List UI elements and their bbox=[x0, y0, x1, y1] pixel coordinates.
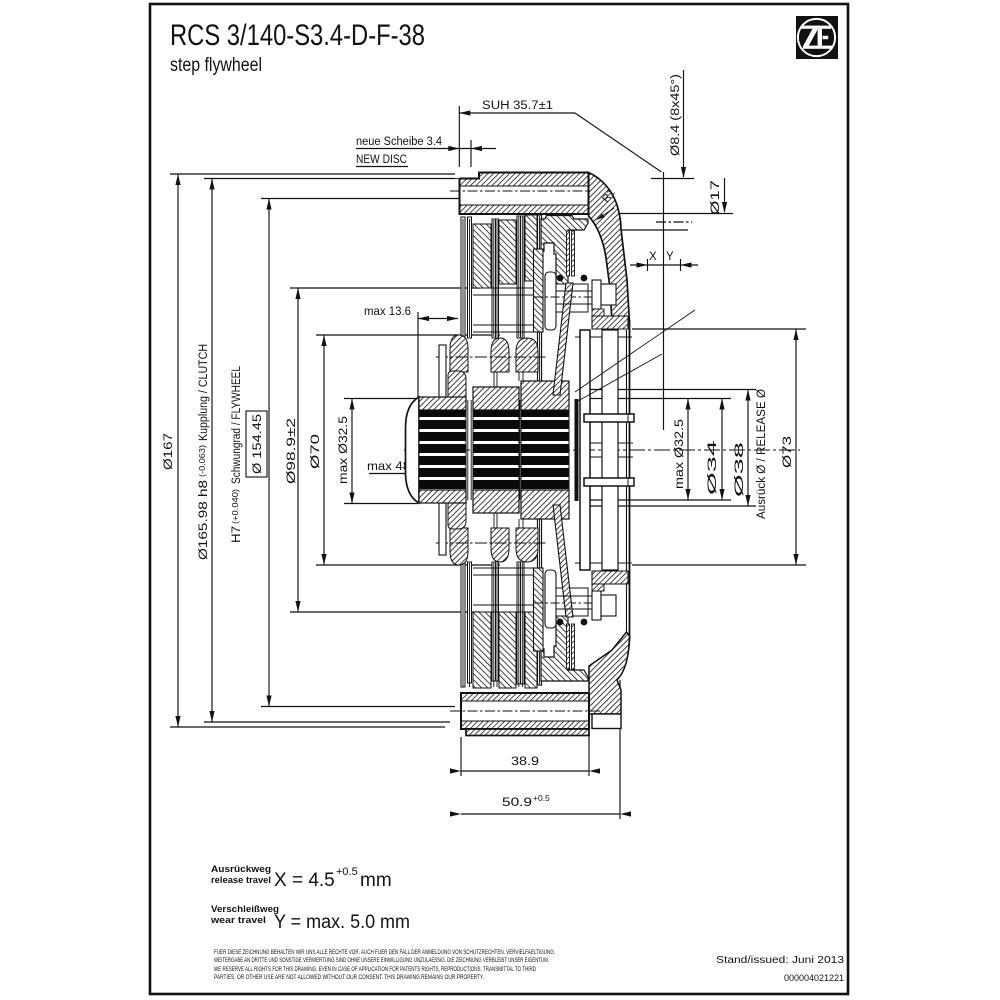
svg-text:Ø 154.45: Ø 154.45 bbox=[252, 414, 264, 474]
svg-text:Stand/issued: Juni 2013: Stand/issued: Juni 2013 bbox=[716, 954, 844, 966]
svg-text:Ø8.4 (8x45°): Ø8.4 (8x45°) bbox=[670, 74, 682, 156]
svg-text:max Ø32.5: max Ø32.5 bbox=[674, 419, 686, 489]
svg-text:release travel: release travel bbox=[211, 875, 271, 886]
svg-text:Verschleißweg: Verschleißweg bbox=[211, 904, 279, 915]
svg-text:Ø70: Ø70 bbox=[310, 434, 322, 469]
svg-text:WEITERGABE AN DRITTE UND SONST: WEITERGABE AN DRITTE UND SONSTIGE VERWER… bbox=[214, 957, 549, 964]
svg-text:Ø165.98 h8: Ø165.98 h8 bbox=[198, 480, 210, 560]
svg-text:WE RESERVE ALL RIGHTS FOR THIS: WE RESERVE ALL RIGHTS FOR THIS DRAWING. … bbox=[214, 966, 536, 973]
svg-text:Ausrück Ø / RELEASE Ø: Ausrück Ø / RELEASE Ø bbox=[756, 389, 768, 519]
svg-text:FUER DIESE ZEICHNUNG BEHALTEN: FUER DIESE ZEICHNUNG BEHALTEN WIR UNS AL… bbox=[214, 949, 555, 956]
svg-text:PARTIES, OR OTHER USE ARE NOT: PARTIES, OR OTHER USE ARE NOT ALLOWED WI… bbox=[214, 974, 484, 981]
svg-text:50.9: 50.9 bbox=[502, 797, 532, 809]
svg-text:SUH 35.7±1: SUH 35.7±1 bbox=[482, 100, 553, 112]
svg-text:(+0.040): (+0.040) bbox=[231, 489, 240, 524]
svg-text:Ø34: Ø34 bbox=[707, 439, 719, 495]
svg-text:mm: mm bbox=[360, 870, 392, 891]
svg-text:000004021221: 000004021221 bbox=[784, 973, 844, 983]
svg-text:(-0.063): (-0.063) bbox=[198, 445, 207, 477]
svg-text:max Ø32.5: max Ø32.5 bbox=[338, 416, 350, 484]
svg-text:H7: H7 bbox=[231, 526, 243, 543]
svg-text:Ø98.9±2: Ø98.9±2 bbox=[286, 418, 298, 484]
svg-text:Ø17: Ø17 bbox=[710, 180, 722, 215]
svg-text:Y = max. 5.0 mm: Y = max. 5.0 mm bbox=[274, 912, 410, 933]
svg-text:Ausrückweg: Ausrückweg bbox=[211, 864, 271, 875]
svg-text:X = 4.5: X = 4.5 bbox=[274, 870, 335, 891]
svg-text:Ø167: Ø167 bbox=[163, 433, 175, 470]
svg-text:step flywheel: step flywheel bbox=[170, 55, 262, 76]
svg-text:NEW DISC: NEW DISC bbox=[356, 154, 407, 166]
svg-text:neue Scheibe 3.4: neue Scheibe 3.4 bbox=[356, 136, 443, 148]
svg-text:X: X bbox=[649, 251, 657, 263]
svg-text:Schwungrad / FLYWHEEL: Schwungrad / FLYWHEEL bbox=[231, 365, 243, 484]
svg-text:RCS 3/140-S3.4-D-F-38: RCS 3/140-S3.4-D-F-38 bbox=[170, 19, 425, 52]
svg-text:38.9: 38.9 bbox=[511, 756, 539, 768]
svg-text:Y: Y bbox=[666, 251, 674, 263]
svg-text:max 13.6: max 13.6 bbox=[364, 306, 411, 318]
svg-text:Kupplung / CLUTCH: Kupplung / CLUTCH bbox=[198, 344, 210, 441]
svg-text:max 48: max 48 bbox=[367, 461, 410, 473]
svg-text:wear travel: wear travel bbox=[210, 915, 266, 926]
svg-text:+0.5: +0.5 bbox=[533, 793, 550, 803]
svg-text:+0.5: +0.5 bbox=[336, 866, 358, 878]
svg-text:Ø73: Ø73 bbox=[782, 436, 794, 468]
